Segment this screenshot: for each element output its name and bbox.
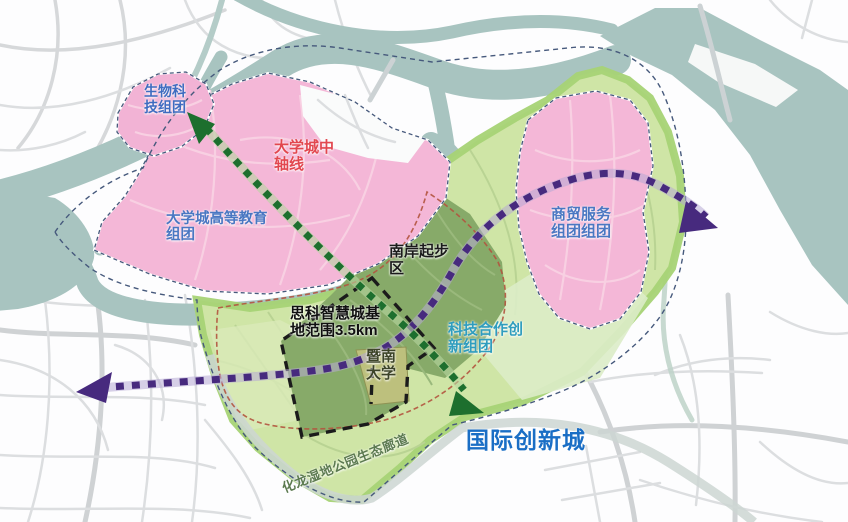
label-line: 大学 bbox=[366, 366, 396, 383]
planning-map: 生物科 技组团 大学城中 轴线 大学城高等教育 组团 南岸起步 区 思科智慧城基… bbox=[0, 0, 848, 522]
label-tech-cooperation-cluster: 科技合作创 新组团 bbox=[448, 322, 523, 356]
label-cisco-smart-city-base: 思科智慧城基 地范围3.5km bbox=[290, 306, 380, 340]
label-line: 思科智慧城基 bbox=[290, 306, 380, 323]
label-higher-education-cluster: 大学城高等教育 组团 bbox=[166, 211, 268, 243]
label-line: 区 bbox=[389, 261, 449, 278]
label-line: 轴线 bbox=[274, 157, 334, 174]
label-international-innovation-city: 国际创新城 bbox=[466, 428, 586, 454]
label-south-bank-startup-area: 南岸起步 区 bbox=[389, 244, 449, 278]
label-line: 组团 bbox=[166, 227, 268, 243]
label-line: 商贸服务 bbox=[551, 207, 611, 224]
label-line: 新组团 bbox=[448, 339, 523, 356]
label-line: 科技合作创 bbox=[448, 322, 523, 339]
label-line: 大学城中 bbox=[274, 140, 334, 157]
label-trade-service-cluster: 商贸服务 组团组团 bbox=[551, 207, 611, 241]
label-central-axis: 大学城中 轴线 bbox=[274, 140, 334, 174]
label-line: 大学城高等教育 bbox=[166, 211, 268, 227]
label-line: 南岸起步 bbox=[389, 244, 449, 261]
label-jinan-university: 暨南 大学 bbox=[366, 349, 396, 383]
label-line: 组团组团 bbox=[551, 224, 611, 241]
label-line: 暨南 bbox=[366, 349, 396, 366]
label-line: 生物科 bbox=[144, 84, 186, 100]
label-line: 技组团 bbox=[144, 100, 186, 116]
label-bio-tech-cluster: 生物科 技组团 bbox=[144, 84, 186, 115]
label-line: 地范围3.5km bbox=[290, 323, 380, 340]
